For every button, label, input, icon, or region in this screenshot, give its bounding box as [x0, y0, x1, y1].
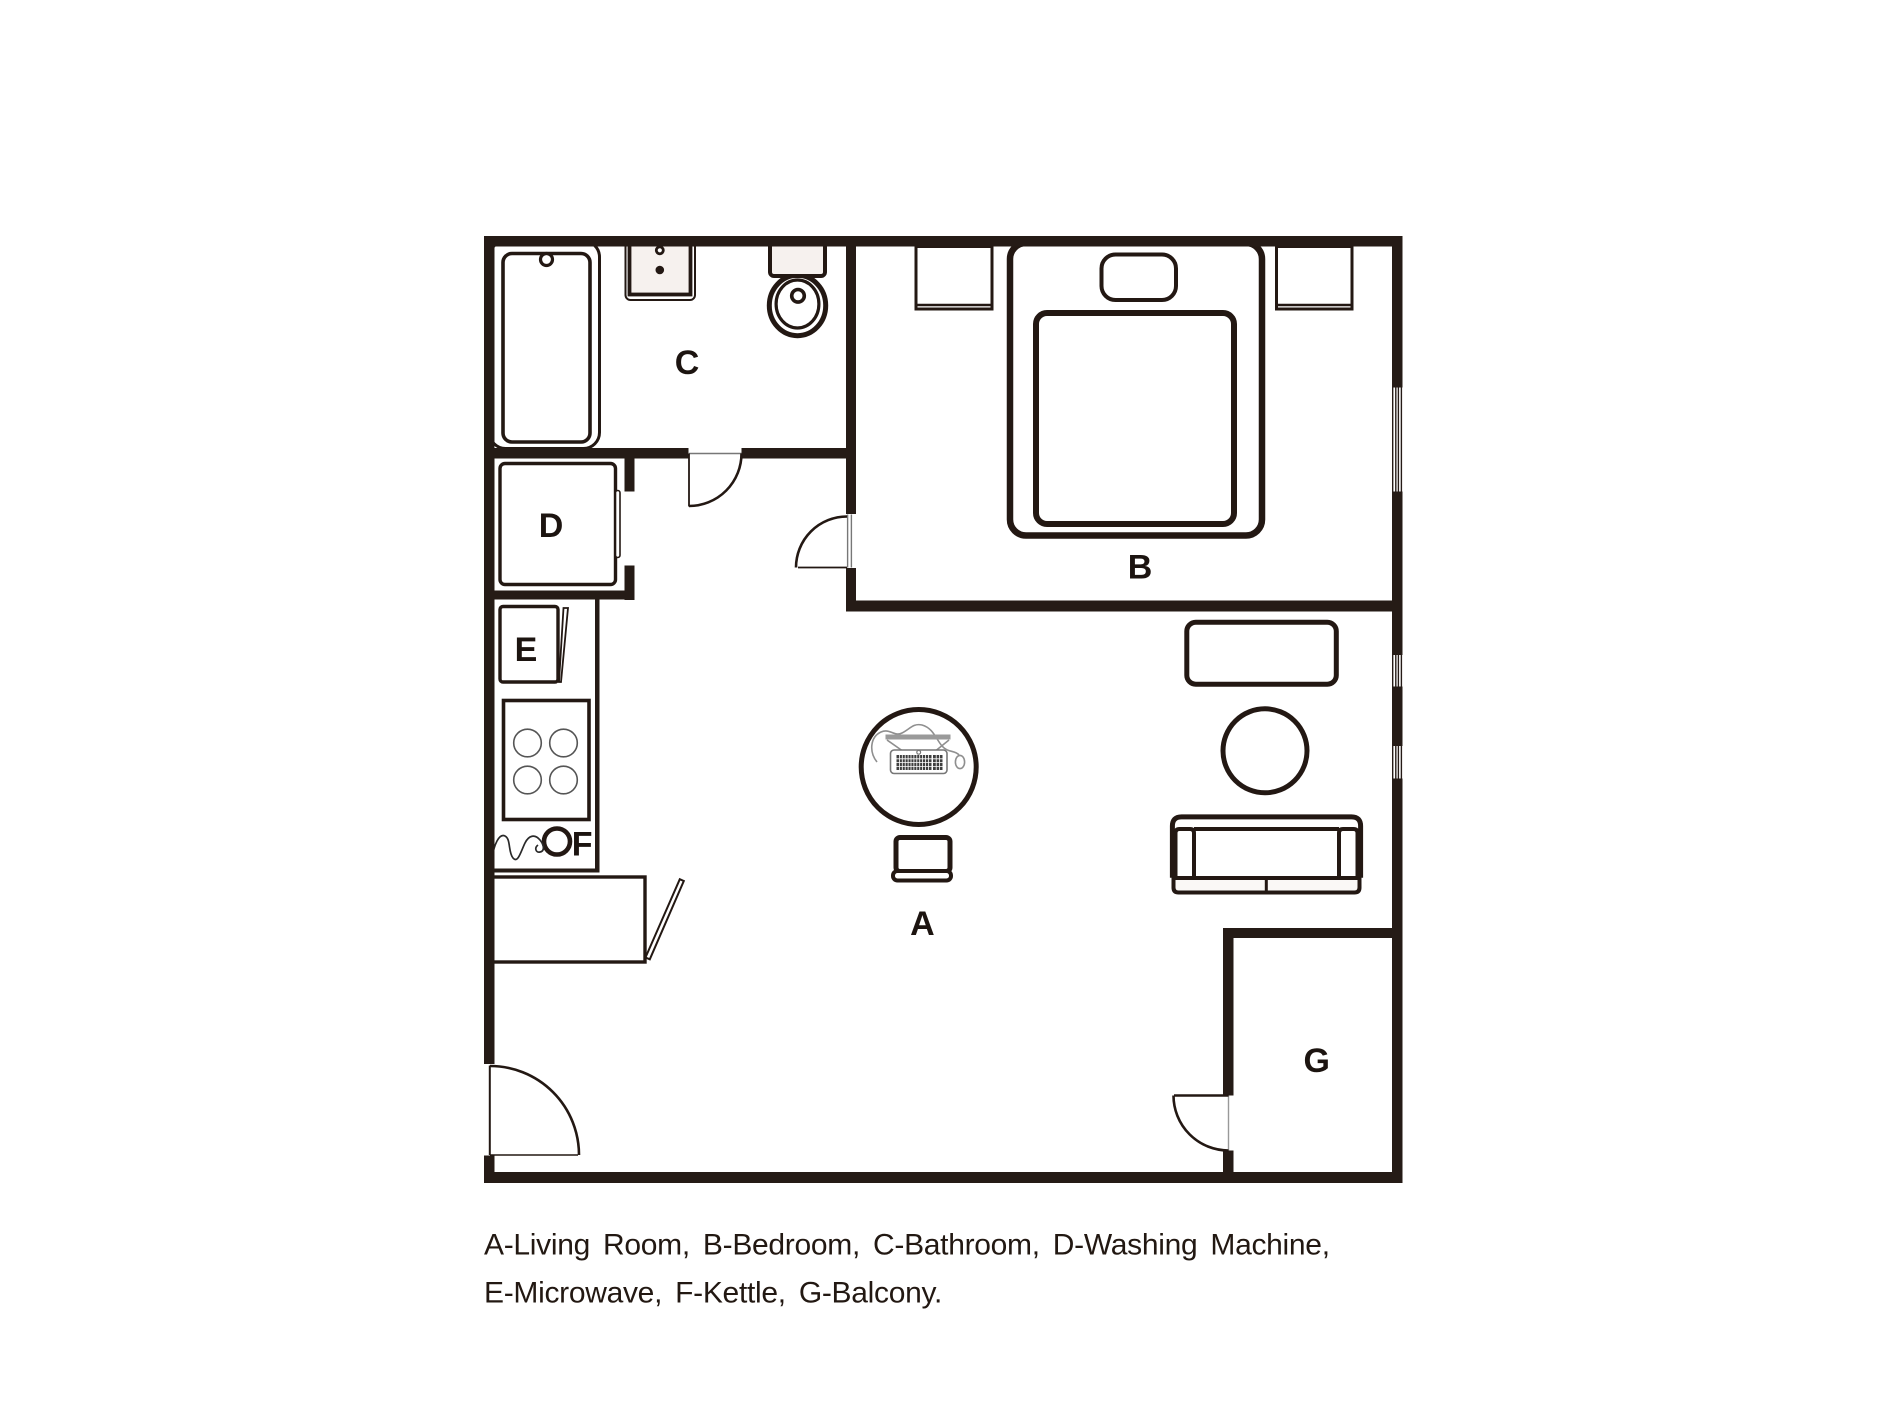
svg-text:E-Microwave, F-Kettle, G-Balco: E-Microwave, F-Kettle, G-Balcony. [484, 1277, 942, 1310]
svg-text:D: D [539, 507, 564, 545]
svg-text:A: A [910, 905, 935, 943]
svg-text:C: C [675, 344, 700, 382]
svg-text:G: G [1303, 1042, 1329, 1080]
svg-text:E: E [515, 631, 538, 669]
svg-text:F: F [572, 826, 593, 864]
svg-text:A-Living Room, B-Bedroom, C-Ba: A-Living Room, B-Bedroom, C-Bathroom, D-… [484, 1229, 1330, 1262]
svg-text:B: B [1128, 549, 1153, 587]
